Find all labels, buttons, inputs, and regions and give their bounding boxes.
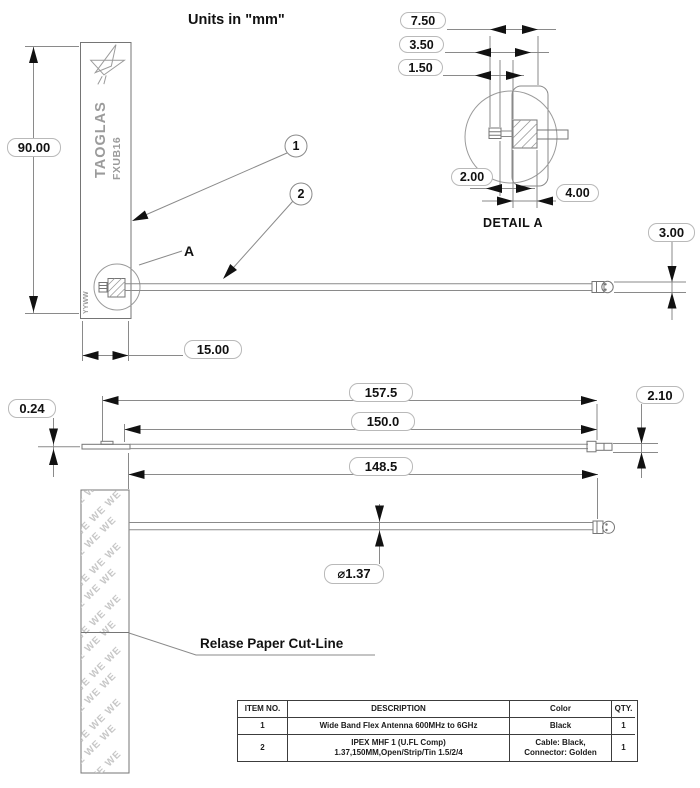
- detail-pin: [489, 128, 501, 139]
- bom-header-description: DESCRIPTION: [288, 701, 510, 718]
- bom-qty: 1: [612, 735, 635, 761]
- dim-pin-gap: 2.00: [451, 168, 493, 186]
- bom-description: IPEX MHF 1 (U.FL Comp) 1.37,150MM,Open/S…: [288, 735, 510, 761]
- model-label: FXUB16: [111, 92, 123, 180]
- cable-bottom: [129, 523, 593, 530]
- bom-header-color: Color: [510, 701, 612, 718]
- detail-cable-stub: [537, 130, 568, 139]
- dim-pad-offset: 3.50: [399, 36, 444, 53]
- bom-qty: 1: [612, 718, 635, 735]
- dim-overall-length: 157.5: [349, 383, 413, 402]
- bom-item-no: 1: [238, 718, 288, 735]
- dim-height: 90.00: [7, 138, 61, 157]
- balloon-1: 1: [285, 135, 307, 157]
- bom-color-line1: Cable: Black,: [535, 738, 585, 748]
- detail-a-title: DETAIL A: [483, 216, 543, 230]
- bom-row-1: 1 Wide Band Flex Antenna 600MHz to 6GHz …: [238, 718, 637, 735]
- ipex-connector-bottom: [593, 521, 615, 534]
- release-paper-note: Relase Paper Cut-Line: [200, 636, 343, 651]
- board-side-profile: [82, 444, 130, 449]
- dim-pad-width: 4.00: [556, 184, 599, 202]
- cable-front: [125, 284, 592, 291]
- cable-side: [130, 444, 588, 448]
- dim-pin-width: 1.50: [398, 59, 443, 76]
- bom-description: Wide Band Flex Antenna 600MHz to 6GHz: [288, 718, 510, 735]
- bom-item-no: 2: [238, 735, 288, 761]
- bom-header-item: ITEM NO.: [238, 701, 288, 718]
- detail-pin-link: [501, 131, 513, 137]
- side-view: [38, 396, 658, 519]
- svg-text:WE WE WE: WE WE WE: [72, 749, 124, 788]
- detail-solder-pad: [513, 120, 537, 148]
- dim-cable-diameter: ⌀1.37: [324, 564, 384, 584]
- bom-description-line1: IPEX MHF 1 (U.FL Comp): [351, 738, 446, 748]
- dim-pad-span: 7.50: [400, 12, 446, 29]
- bom-color-line2: Connector: Golden: [524, 748, 596, 758]
- dim-cut-to-connector: 148.5: [349, 457, 413, 476]
- bom-description-line2: 1.37,150MM,Open/Strip/Tin 1.5/2/4: [334, 748, 462, 758]
- dim-thickness: 0.24: [8, 399, 56, 418]
- feed-solder-pad: [108, 279, 125, 298]
- ipex-connector-front: [592, 281, 613, 292]
- dim-cable-length: 150.0: [351, 412, 415, 431]
- technical-drawing: WE WE WE WE WE WE WE WE WE WE WE WE WE W…: [0, 0, 700, 788]
- bom-row-2: 2 IPEX MHF 1 (U.FL Comp) 1.37,150MM,Open…: [238, 735, 637, 761]
- bom-table: ITEM NO. DESCRIPTION Color QTY. 1 Wide B…: [237, 700, 638, 762]
- dim-width: 15.00: [184, 340, 242, 359]
- release-paper-pattern: WE WE WE WE WE WE WE WE WE WE WE WE WE W…: [67, 463, 124, 788]
- balloon-leaders: [134, 153, 293, 277]
- bom-header-row: ITEM NO. DESCRIPTION Color QTY.: [238, 701, 637, 718]
- feed-pin: [99, 283, 107, 293]
- bom-color: Black: [510, 718, 612, 735]
- feed-bump-side: [101, 441, 113, 444]
- detail-ref-label: A: [184, 243, 194, 259]
- page-title: Units in "mm": [188, 12, 285, 28]
- balloon-2: 2: [290, 183, 312, 205]
- dim-connector-height: 2.10: [636, 386, 684, 404]
- detail-a-circle-marker: [94, 264, 140, 310]
- date-code-label: YYWW: [83, 280, 90, 314]
- dim-connector-od: 3.00: [648, 223, 695, 242]
- dim-90-lines: [25, 47, 79, 314]
- bom-header-qty: QTY.: [612, 701, 635, 718]
- brand-label: TAOGLAS: [93, 58, 109, 178]
- bom-color: Cable: Black, Connector: Golden: [510, 735, 612, 761]
- ipex-connector-side: [587, 441, 612, 452]
